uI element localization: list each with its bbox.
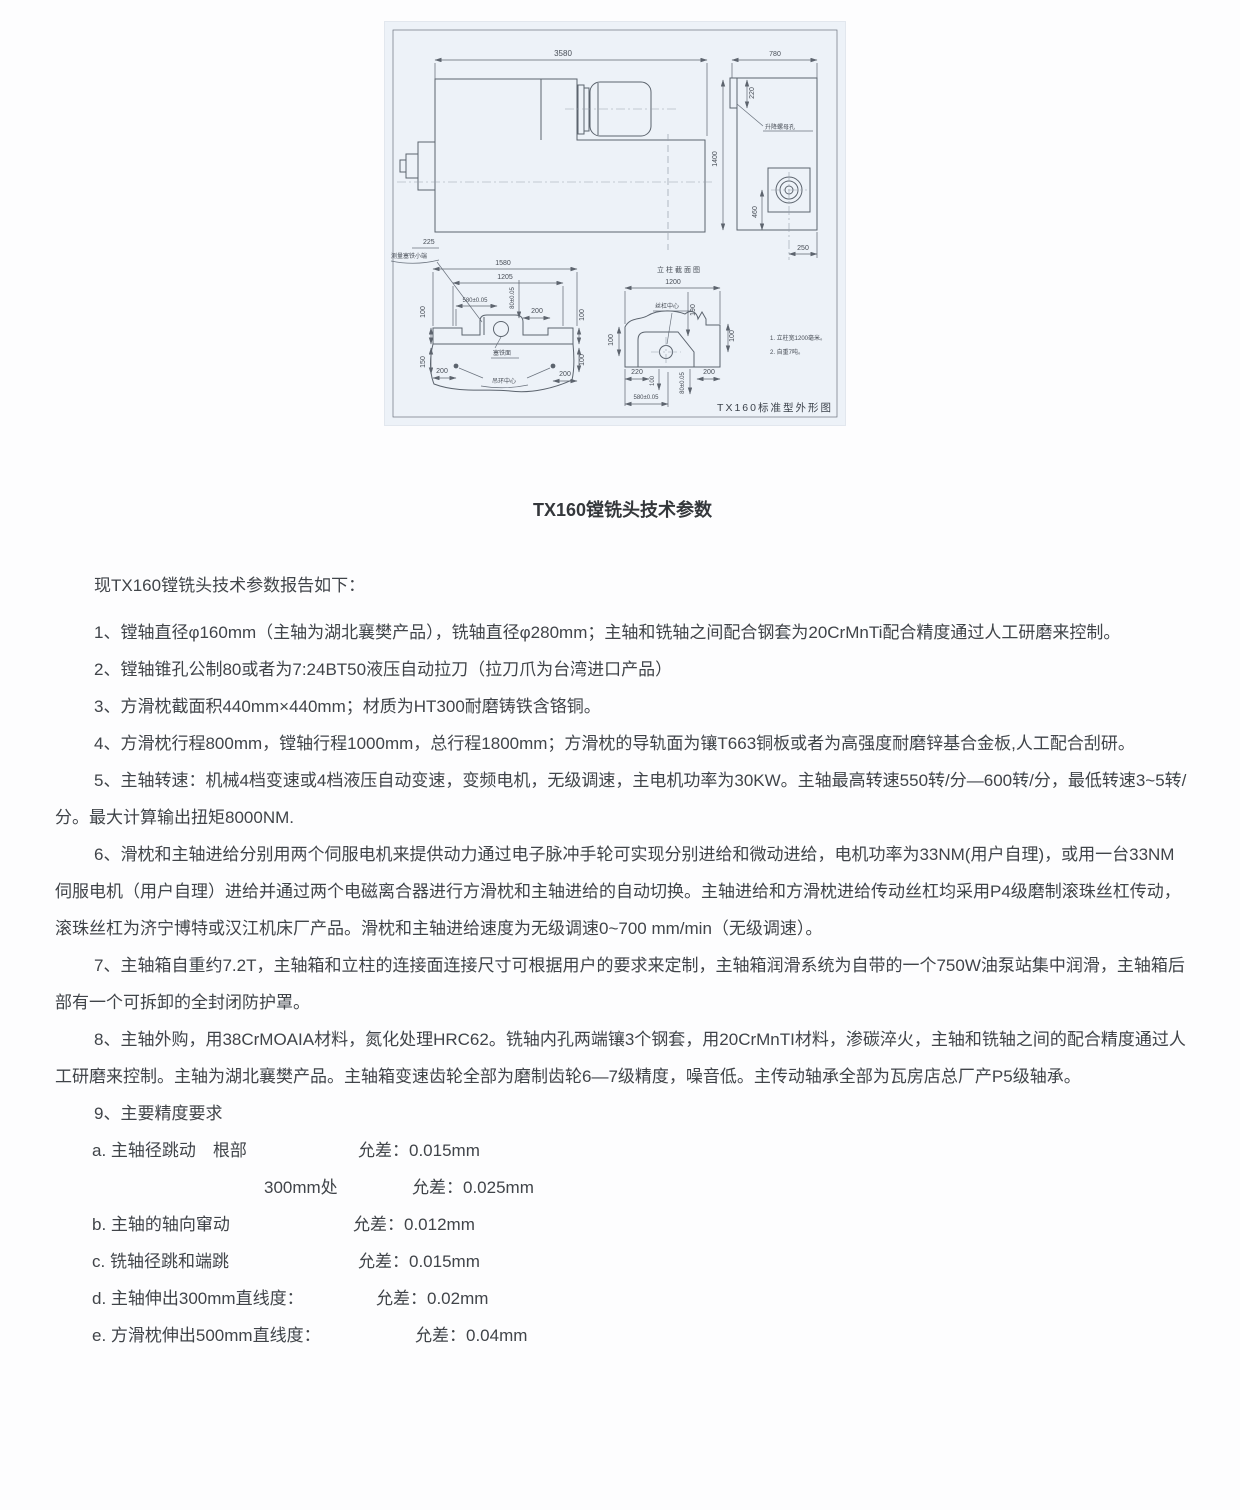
precision-value: 允差：0.012mm bbox=[353, 1206, 475, 1243]
dim-100-cr: 100 bbox=[729, 330, 736, 342]
label-measure-gib: 测量塞铁小端 bbox=[391, 252, 427, 260]
dim-100-r1: 100 bbox=[579, 309, 586, 321]
document-page: { "colors": { "page_bg":"#fdfdfe", "text… bbox=[0, 0, 1240, 1510]
dim-220b: 220 bbox=[631, 369, 643, 376]
dim-460: 460 bbox=[752, 206, 759, 218]
drawing-frame bbox=[393, 30, 837, 417]
precision-label: c. 铣轴径跳和端跳 bbox=[92, 1243, 229, 1280]
precision-row-d: d. 主轴伸出300mm直线度： 允差：0.02mm bbox=[55, 1280, 1190, 1317]
dim-80-left: 80±0.05 bbox=[510, 287, 516, 309]
dim-100-cl: 100 bbox=[608, 334, 615, 346]
technical-drawing: 3580 780 1400 220 升降螺母孔 bbox=[385, 22, 845, 425]
paragraph-5: 5、主轴转速：机械4档变速或4档液压自动变速，变频电机，无级调速，主电机功率为3… bbox=[55, 762, 1190, 836]
page-title: TX160镗铣头技术参数 bbox=[55, 496, 1190, 522]
paragraph-8: 8、主轴外购，用38CrMOAIA材料，氮化处理HRC62。铣轴内孔两端镶3个钢… bbox=[55, 1021, 1190, 1095]
label-lift-screw-hole: 升降螺母孔 bbox=[765, 123, 795, 131]
slide-cross-section: 225 测量塞铁小端 1580 1205 580±0.05 80±0.05 20… bbox=[391, 239, 586, 392]
label-gib-face: 塞铁面 bbox=[493, 349, 511, 357]
paragraph-1: 1、镗轴直径φ160mm（主轴为湖北襄樊产品），铣轴直径φ280mm；主轴和铣轴… bbox=[55, 614, 1190, 651]
precision-row-a: a. 主轴径跳动 根部 允差：0.015mm bbox=[55, 1132, 1190, 1169]
dim-1580: 1580 bbox=[495, 260, 511, 267]
tx160-outline-drawing: 3580 780 1400 220 升降螺母孔 bbox=[385, 22, 845, 425]
label-screw-center: 丝杠中心 bbox=[655, 302, 679, 310]
label-column-section: 立柱截面图 bbox=[657, 265, 702, 274]
dim-250: 250 bbox=[797, 245, 809, 252]
precision-label: b. 主轴的轴向窜动 bbox=[92, 1206, 230, 1243]
precision-label: 300mm处 bbox=[264, 1169, 338, 1206]
paragraph-9: 9、主要精度要求 bbox=[55, 1095, 1190, 1132]
dim-200-bl: 200 bbox=[436, 368, 448, 375]
drawing-caption: TX160标准型外形图 bbox=[717, 401, 833, 414]
dim-580-left: 580±0.05 bbox=[463, 298, 489, 304]
dim-200-mid: 200 bbox=[531, 308, 543, 315]
label-ring-center: 吊环中心 bbox=[492, 377, 516, 385]
precision-value: 允差：0.015mm bbox=[358, 1243, 480, 1280]
dim-100-r2: 100 bbox=[579, 354, 586, 366]
precision-row-e: e. 方滑枕伸出500mm直线度： 允差：0.04mm bbox=[55, 1317, 1190, 1354]
note-2: 2. 自重7吨。 bbox=[770, 348, 804, 356]
precision-label: e. 方滑枕伸出500mm直线度： bbox=[92, 1317, 321, 1354]
dim-200-c: 200 bbox=[703, 369, 715, 376]
dim-580b: 580±0.05 bbox=[634, 395, 660, 401]
column-side-view: 780 1400 220 升降螺母孔 460 250 bbox=[712, 51, 817, 260]
dim-80b: 80±0.05 bbox=[680, 372, 686, 394]
column-cross-section: 立柱截面图 1200 丝杠中心 190 100 100 220 100 80±0… bbox=[608, 265, 833, 414]
dim-150: 150 bbox=[420, 356, 427, 368]
note-1: 1. 立柱宽1200毫米。 bbox=[770, 334, 826, 342]
intro-paragraph: 现TX160镗铣头技术参数报告如下： bbox=[55, 567, 1190, 604]
paragraph-7: 7、主轴箱自重约7.2T，主轴箱和立柱的连接面连接尺寸可根据用户的要求来定制，主… bbox=[55, 947, 1190, 1021]
precision-value: 允差：0.025mm bbox=[412, 1169, 534, 1206]
dim-1400: 1400 bbox=[712, 151, 719, 167]
precision-value: 允差：0.015mm bbox=[358, 1132, 480, 1169]
precision-label: a. 主轴径跳动 根部 bbox=[92, 1132, 247, 1169]
dim-100-b: 100 bbox=[650, 375, 656, 386]
precision-row-b: b. 主轴的轴向窜动 允差：0.012mm bbox=[55, 1206, 1190, 1243]
document-body: TX160镗铣头技术参数 现TX160镗铣头技术参数报告如下： 1、镗轴直径φ1… bbox=[55, 496, 1190, 1354]
dim-1205: 1205 bbox=[497, 274, 513, 281]
dim-3580: 3580 bbox=[554, 49, 572, 58]
precision-value: 允差：0.04mm bbox=[415, 1317, 527, 1354]
precision-row-c: c. 铣轴径跳和端跳 允差：0.015mm bbox=[55, 1243, 1190, 1280]
dim-225: 225 bbox=[423, 239, 435, 246]
paragraph-3: 3、方滑枕截面积440mm×440mm；材质为HT300耐磨铸铁含铬铜。 bbox=[55, 688, 1190, 725]
main-side-view: 3580 bbox=[397, 49, 715, 250]
paragraph-4: 4、方滑枕行程800mm，镗轴行程1000mm，总行程1800mm；方滑枕的导轨… bbox=[55, 725, 1190, 762]
dim-200-br: 200 bbox=[559, 371, 571, 378]
precision-value: 允差：0.02mm bbox=[376, 1280, 488, 1317]
dim-100-left: 100 bbox=[420, 306, 427, 318]
dim-220: 220 bbox=[749, 87, 756, 99]
dim-780: 780 bbox=[769, 51, 781, 58]
dim-1200: 1200 bbox=[665, 279, 681, 286]
paragraph-6: 6、滑枕和主轴进给分别用两个伺服电机来提供动力通过电子脉冲手轮可实现分别进给和微… bbox=[55, 836, 1190, 947]
precision-row-a2: 300mm处 允差：0.025mm bbox=[55, 1169, 1190, 1206]
paragraph-2: 2、镗轴锥孔公制80或者为7:24BT50液压自动拉刀（拉刀爪为台湾进口产品） bbox=[55, 651, 1190, 688]
precision-label: d. 主轴伸出300mm直线度： bbox=[92, 1280, 304, 1317]
